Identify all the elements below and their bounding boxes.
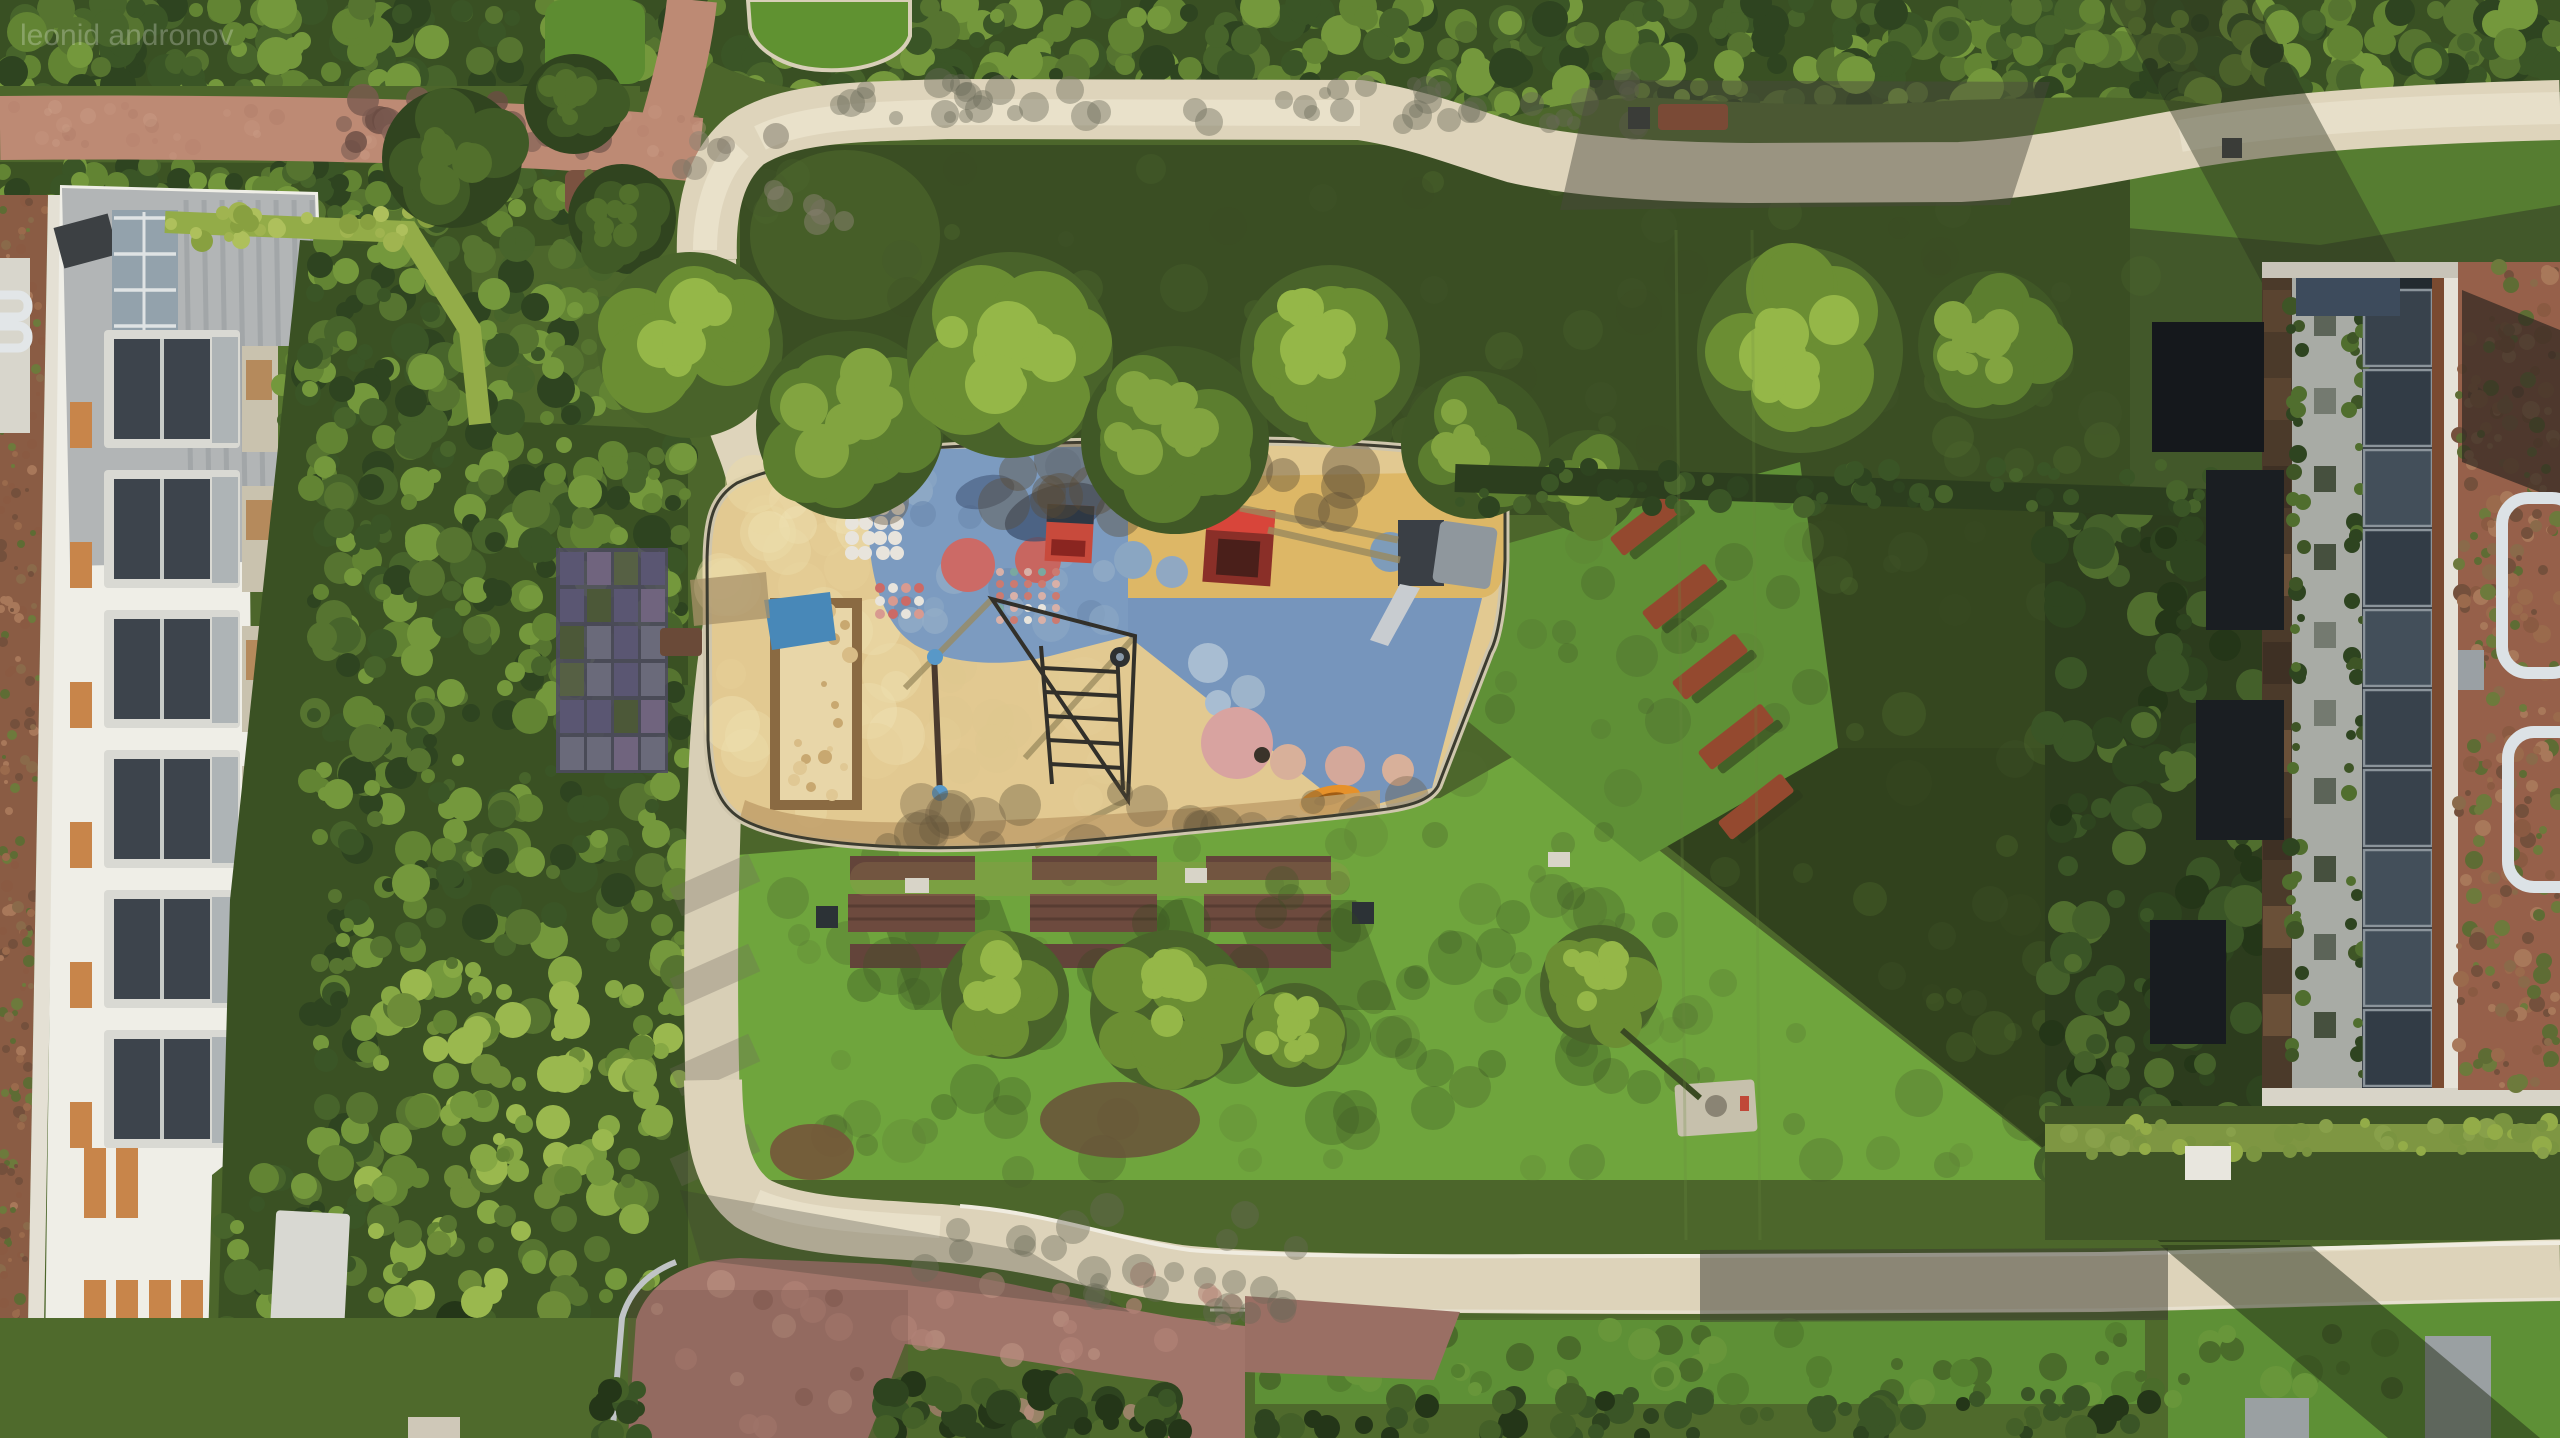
svg-text:leonid andronov: leonid andronov [20,19,234,52]
